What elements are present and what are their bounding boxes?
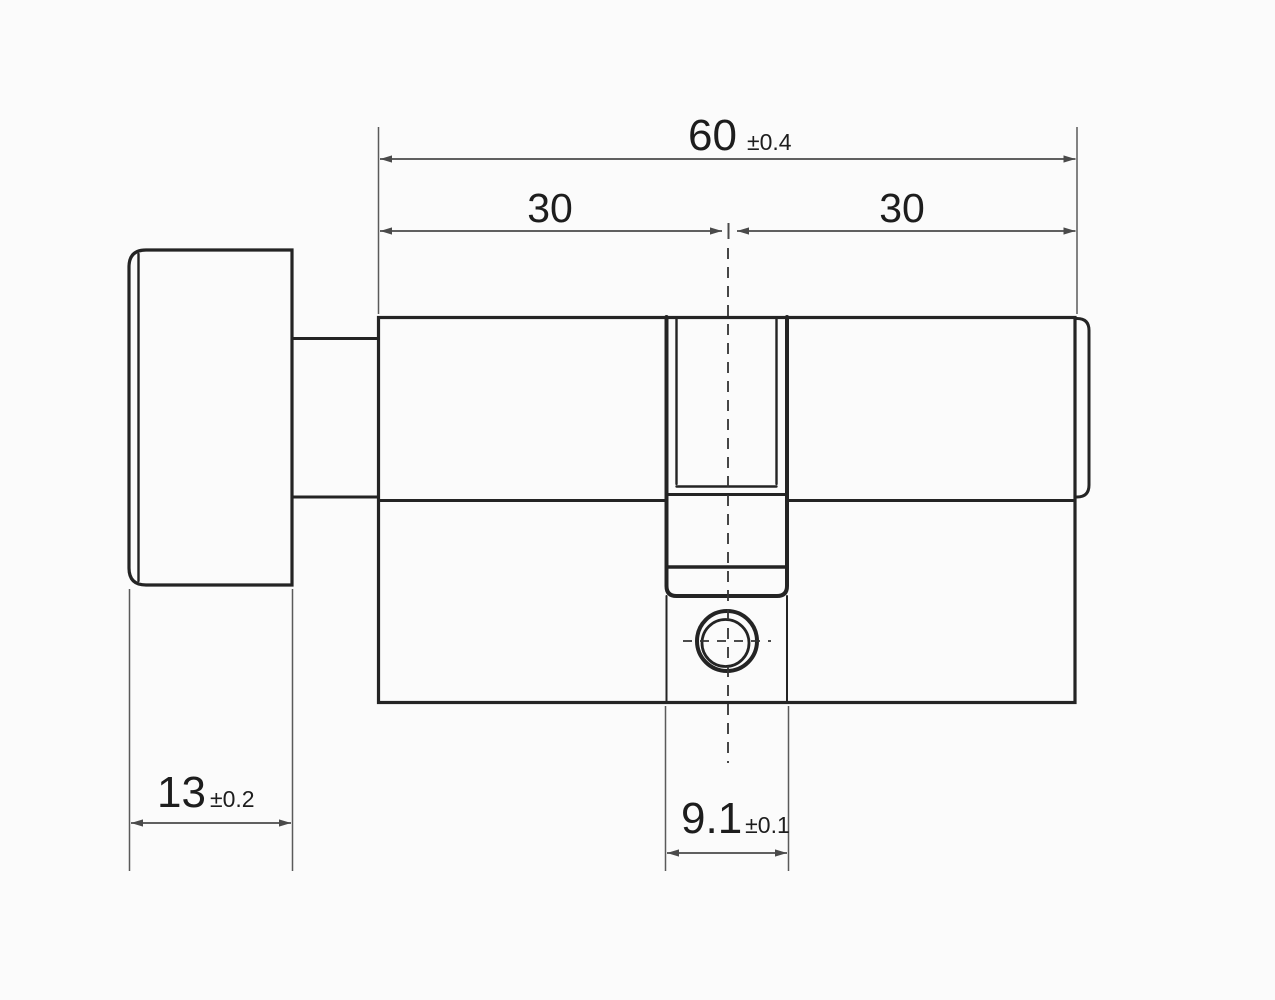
knob-depth-tolerance: ±0.2 [210,786,255,812]
label-left-half: 30 [527,185,573,231]
cylinder-body-outline [379,318,1076,703]
screw-inner-circle [702,620,749,667]
drawing-canvas: 60±0.4 30 30 13±0.2 9.1±0.1 [0,0,1275,1000]
knob-outline [129,250,292,585]
dimension-left-half: 30 [380,185,722,231]
knob-depth-value: 13 [157,768,206,817]
dimension-total-length: 60±0.4 [380,111,1076,160]
label-right-half: 30 [879,185,925,231]
cam-section [667,317,788,701]
right-end-cap [1075,319,1089,498]
cylinder-dimension-drawing: 60±0.4 30 30 13±0.2 9.1±0.1 [0,0,1275,1000]
total-length-tolerance: ±0.4 [747,129,792,155]
cam-width-tolerance: ±0.1 [745,812,790,838]
knob-neck [292,339,378,498]
thumbturn-knob [129,250,292,585]
label-knob-depth: 13±0.2 [157,768,255,817]
dimension-knob-depth: 13±0.2 [131,768,291,823]
label-cam-width: 9.1±0.1 [681,794,790,843]
dimension-cam-width: 9.1±0.1 [667,794,790,853]
label-total-length: 60±0.4 [688,111,792,160]
cam-width-value: 9.1 [681,794,742,843]
dimension-right-half: 30 [737,185,1076,231]
cam-outline [667,317,788,596]
total-length-value: 60 [688,111,737,160]
